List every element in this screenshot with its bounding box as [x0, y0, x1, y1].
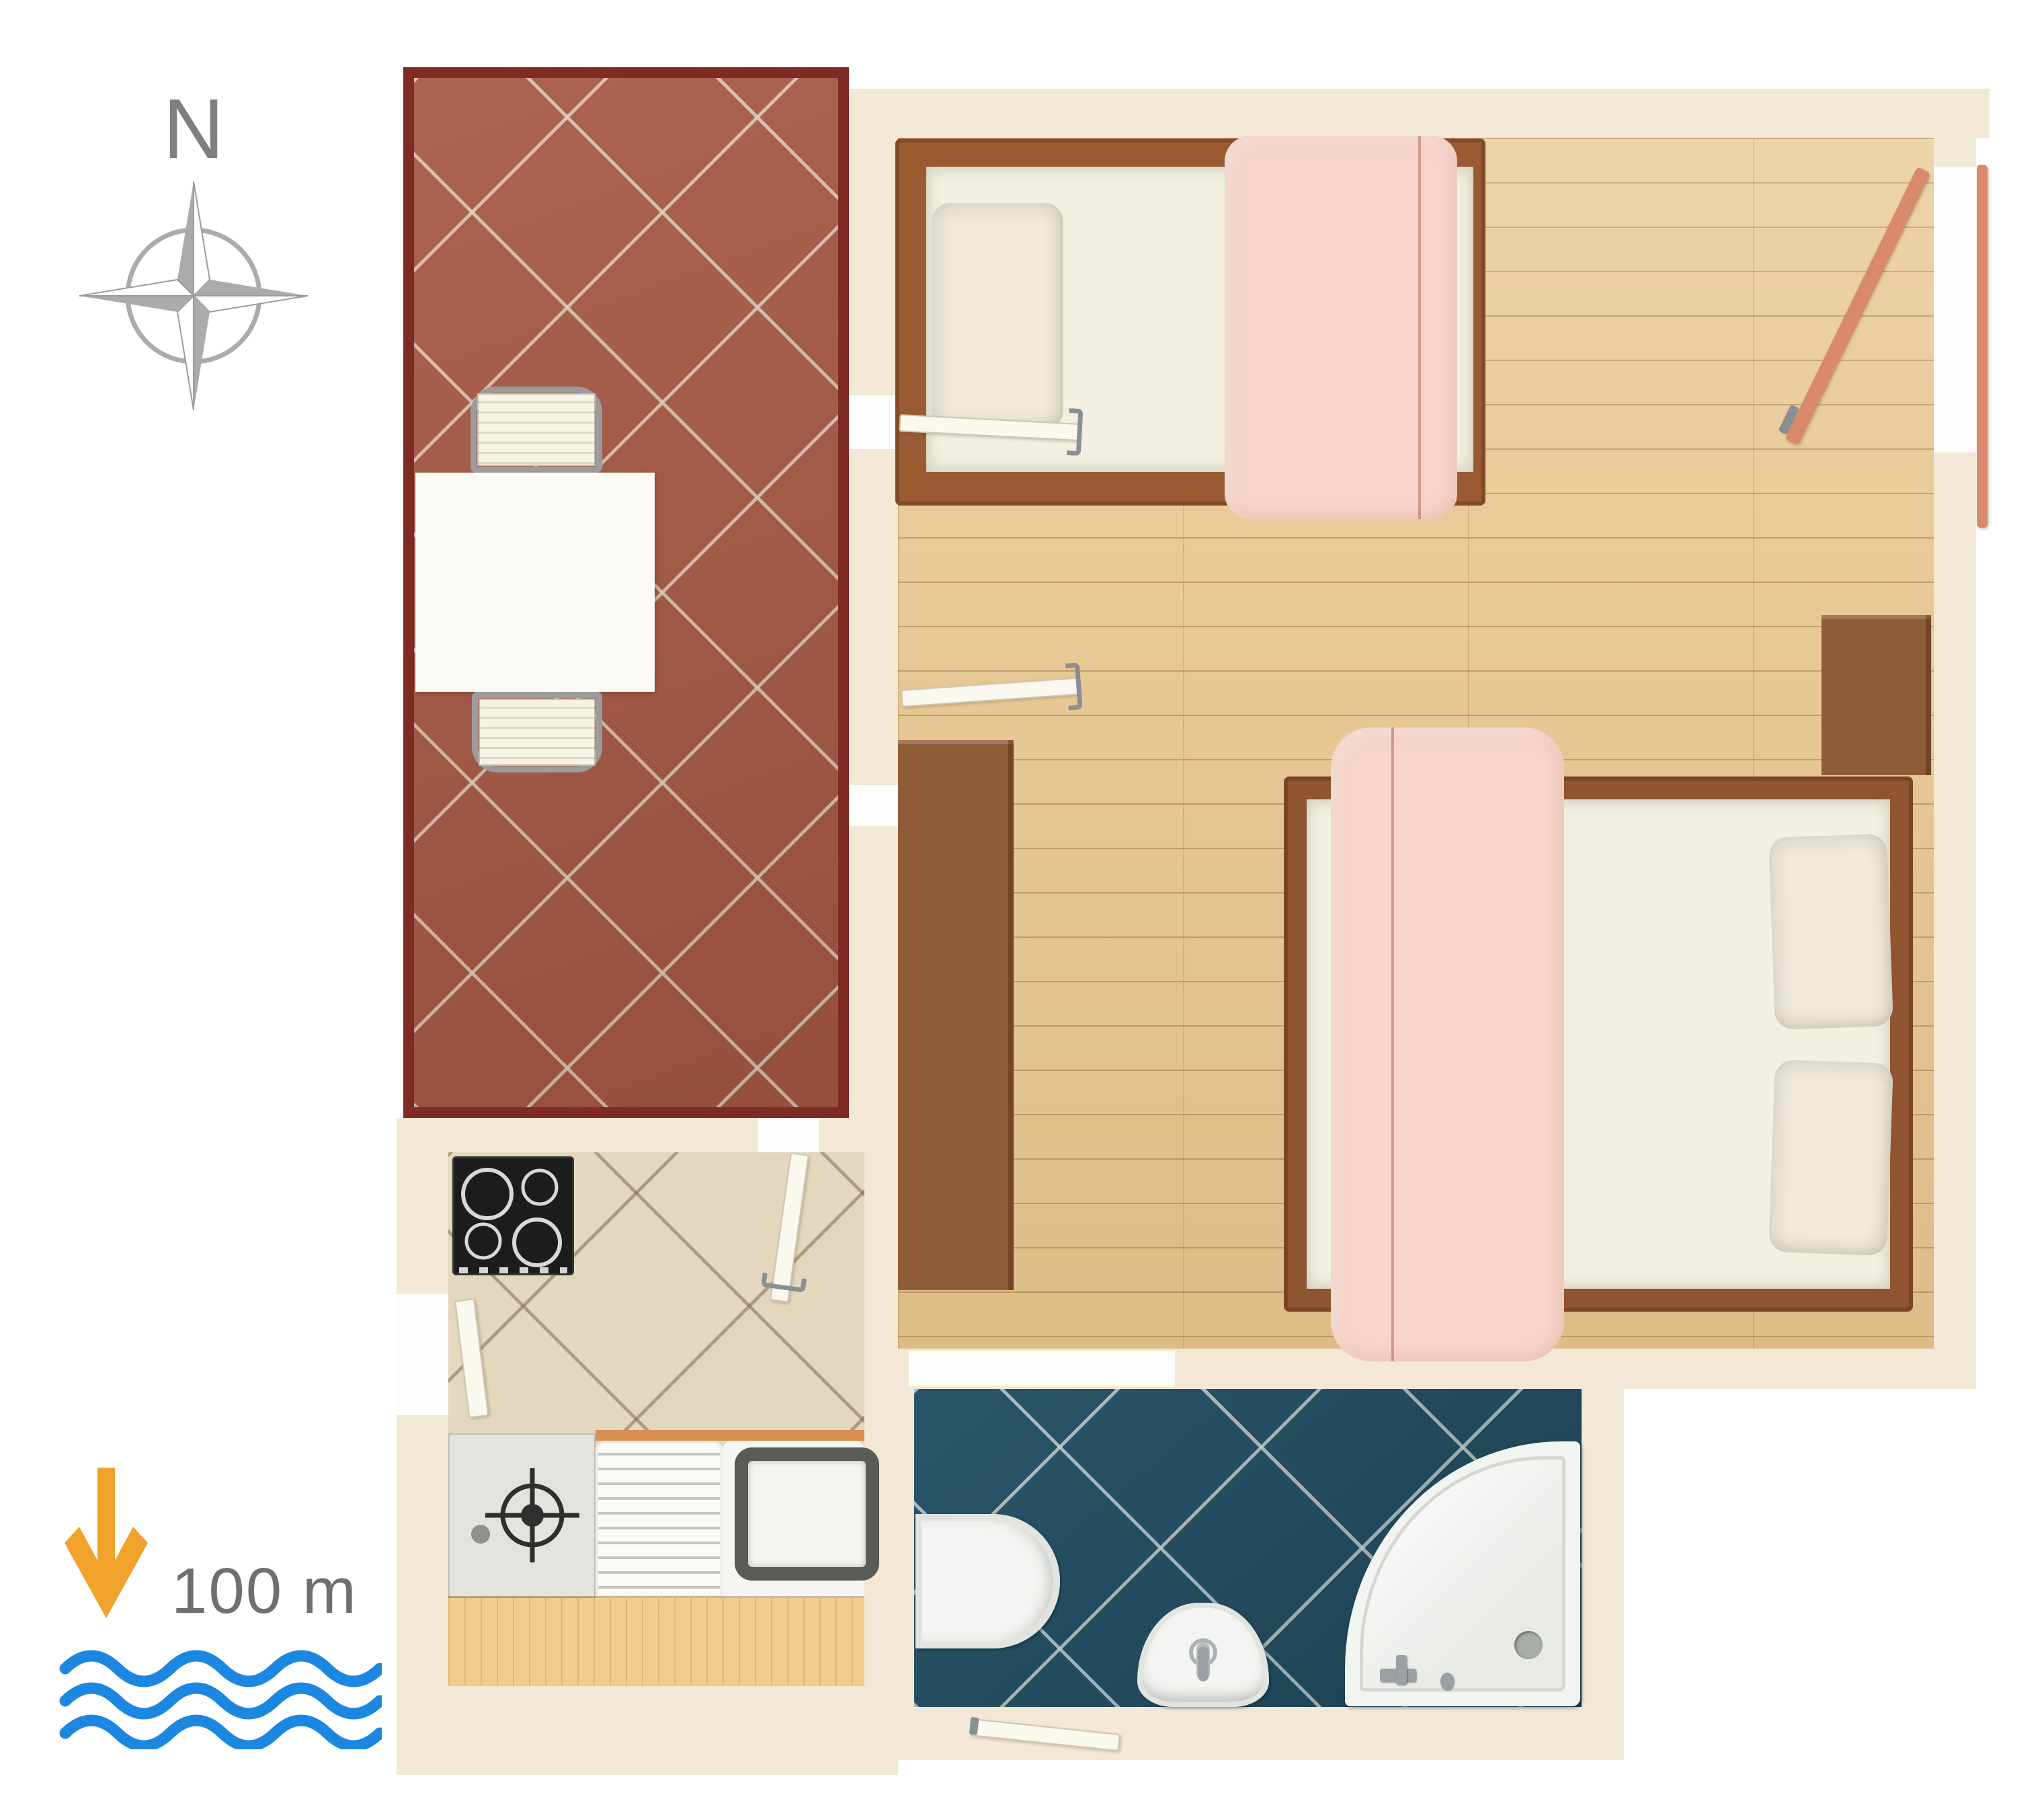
- kitchen-sink: [723, 1441, 864, 1598]
- sink-basin: [735, 1447, 879, 1581]
- chair-bottom: [472, 692, 602, 772]
- door-hinge-icon: [969, 1717, 979, 1735]
- blanket-fold: [1418, 136, 1421, 519]
- chair-top: [471, 387, 602, 473]
- burner-crosshair-icon: [448, 1433, 596, 1598]
- shower-drain-icon: [1514, 1631, 1543, 1659]
- kitchen-backsplash: [596, 1430, 864, 1441]
- dining-table: [415, 473, 655, 692]
- pillow: [932, 203, 1063, 429]
- pillow: [1768, 834, 1893, 1030]
- bidet-faucet-icon: [1198, 1646, 1209, 1681]
- shower-knob-icon: [1440, 1673, 1454, 1690]
- wall-kitchen-top: [448, 1118, 889, 1152]
- wall-bathroom-right: [1582, 1389, 1624, 1760]
- double-bed-blanket: [1331, 727, 1564, 1361]
- shower-faucet-icon: [1396, 1655, 1407, 1685]
- door-opening-terrace-upper: [849, 395, 898, 449]
- kitchen-burner-unit: [448, 1433, 596, 1598]
- distance-arrow-icon: [59, 1462, 153, 1624]
- kitchen-counter-front: [448, 1598, 864, 1686]
- door-opening-kitchen-left: [397, 1294, 448, 1415]
- door-opening-bathroom: [909, 1351, 1175, 1386]
- single-bed: [895, 138, 1485, 506]
- bathtub: [915, 1514, 1060, 1648]
- blanket-fold: [1391, 727, 1394, 1361]
- nightstand: [1822, 615, 1931, 775]
- wall-bedroom-top: [849, 89, 1990, 138]
- pillow: [1768, 1060, 1893, 1256]
- chair-seat: [477, 393, 596, 466]
- wall-bathroom-left: [889, 1349, 914, 1760]
- compass-rose-icon: N: [59, 47, 328, 424]
- dish-drainer: [596, 1441, 723, 1598]
- sea-waves-icon: [59, 1642, 382, 1749]
- desk: [898, 740, 1014, 1290]
- wall-kitchen-bottom: [397, 1686, 889, 1775]
- compass-rose: N: [59, 47, 328, 424]
- door-opening-entry: [1934, 167, 1976, 452]
- stove-cooktop: [452, 1156, 574, 1275]
- wall-kitchen-left: [397, 1118, 448, 1775]
- door-handle-icon: [1067, 408, 1084, 456]
- single-bed-blanket: [1225, 136, 1457, 519]
- burners-icon: [452, 1156, 574, 1269]
- door-opening-terrace-lower: [849, 785, 898, 826]
- wall-terrace-bedroom: [849, 138, 898, 1152]
- floor-plan-page: N 100 m: [0, 0, 2044, 1793]
- distance-label: 100 m: [171, 1554, 358, 1628]
- chair-seat: [479, 699, 596, 766]
- north-letter: N: [163, 81, 224, 176]
- entry-door-jamb: [1977, 165, 1988, 528]
- double-bed: [1284, 776, 1913, 1312]
- door-opening-kitchen-top: [758, 1118, 819, 1152]
